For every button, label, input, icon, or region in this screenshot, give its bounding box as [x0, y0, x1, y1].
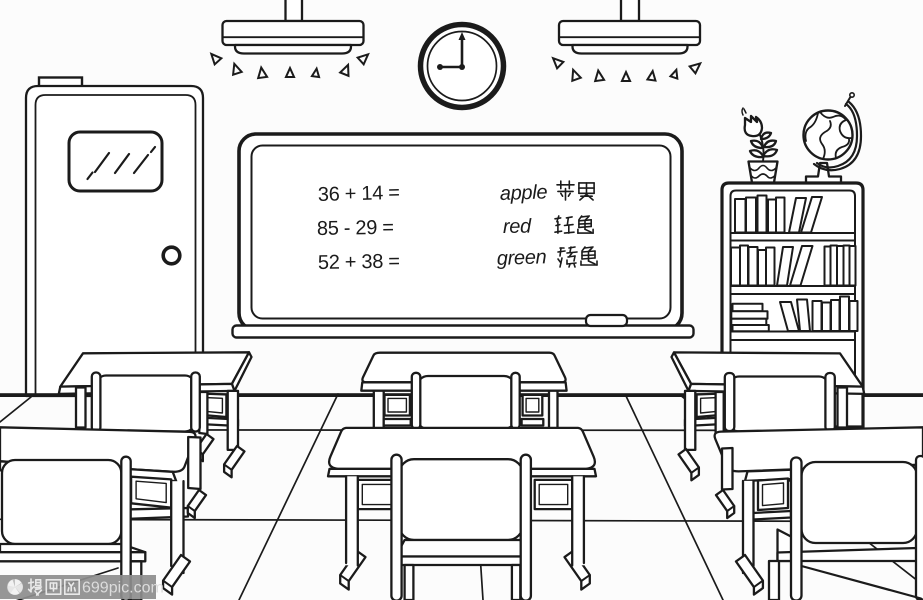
svg-text:699pic.com: 699pic.com — [82, 580, 164, 597]
svg-text:52 + 38 =: 52 + 38 = — [318, 251, 400, 274]
svg-text:green: green — [496, 246, 547, 270]
svg-text:red: red — [503, 215, 533, 238]
svg-text:36 + 14 =: 36 + 14 = — [318, 182, 400, 206]
svg-text:apple: apple — [499, 181, 547, 205]
svg-text:85 - 29 =: 85 - 29 = — [317, 217, 394, 240]
